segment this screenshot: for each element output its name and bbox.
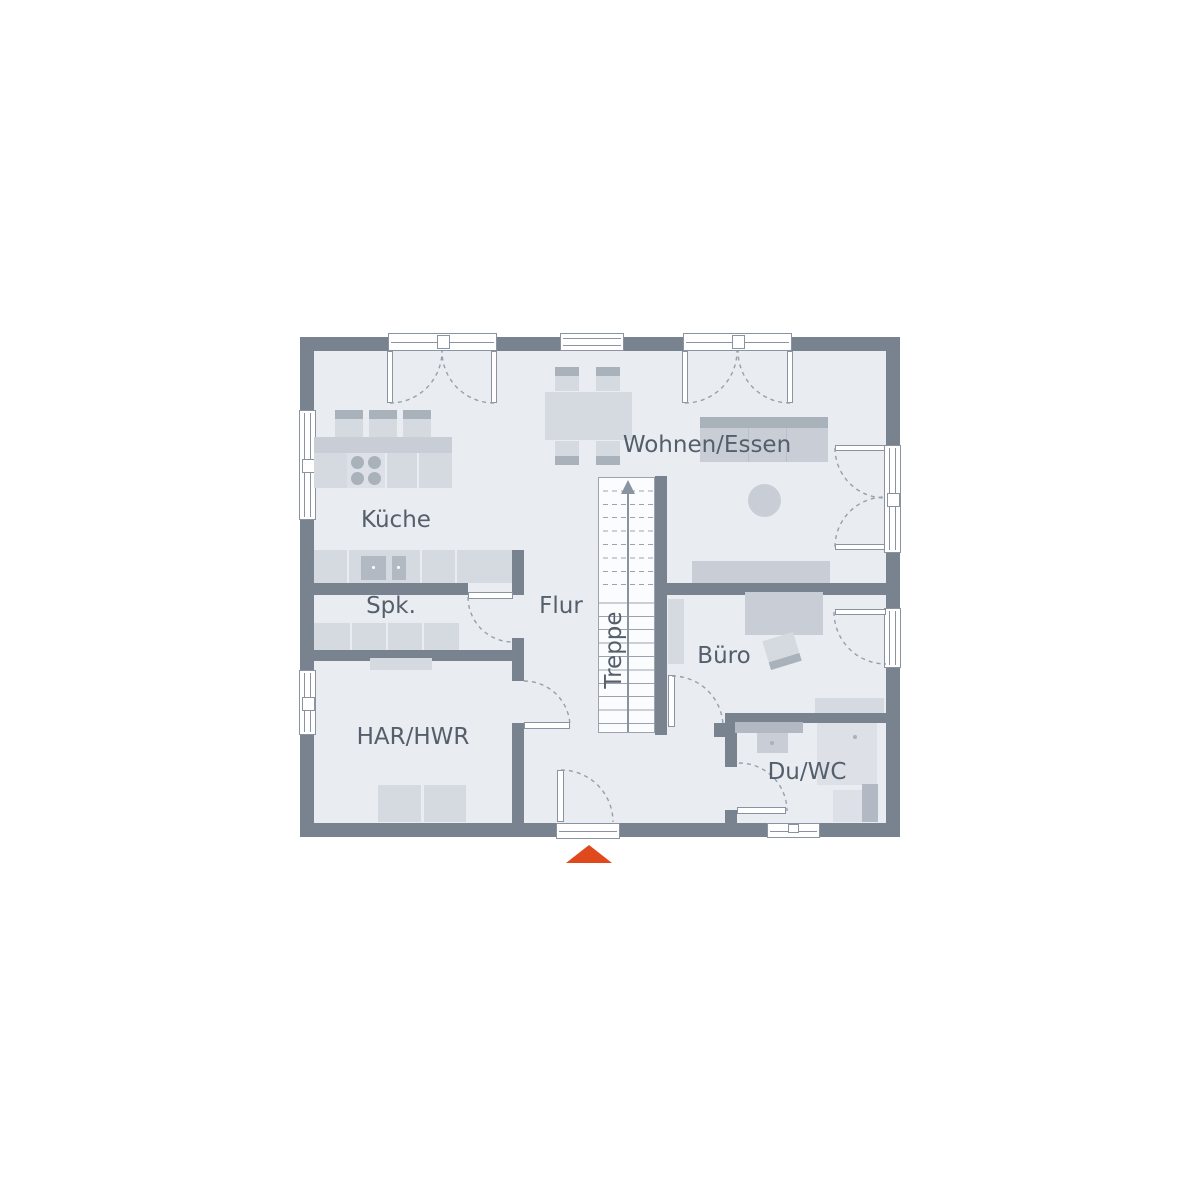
stool xyxy=(335,419,363,437)
chair xyxy=(555,376,579,391)
chair xyxy=(555,441,579,456)
exterior-wall-right xyxy=(886,337,900,837)
french-door-right xyxy=(884,445,901,553)
room-label-har-hwr: HAR/HWR xyxy=(323,722,503,752)
washbasin xyxy=(757,733,788,753)
arrow-up-icon xyxy=(621,480,635,494)
terrace-door-buero xyxy=(884,608,901,668)
room-label-wohnen-essen: Wohnen/Essen xyxy=(607,430,807,460)
door-leaf xyxy=(835,544,885,550)
counter-divider xyxy=(420,550,422,583)
shelf-divider xyxy=(422,623,424,650)
door-handle xyxy=(732,335,745,349)
room-label-buero: Büro xyxy=(654,641,794,671)
kitchen-counter-back xyxy=(314,437,452,453)
counter-divider xyxy=(417,453,419,488)
counter-divider xyxy=(385,453,387,488)
toilet xyxy=(833,790,862,822)
office-cabinet xyxy=(815,698,884,713)
wall-duwc-stub xyxy=(714,723,727,737)
chair xyxy=(596,376,620,391)
wall-stairs xyxy=(655,476,667,735)
door-leaf xyxy=(491,351,497,403)
burner xyxy=(351,456,364,469)
stove xyxy=(347,453,385,488)
kitchen-sink-counter xyxy=(314,550,512,583)
shelf-divider xyxy=(350,623,352,650)
vanity-counter xyxy=(735,722,803,733)
door-leaf-duwc xyxy=(737,807,786,814)
burner xyxy=(368,456,381,469)
stool-back xyxy=(335,410,363,419)
room-label-treppe: Treppe xyxy=(599,600,629,700)
shelf-divider xyxy=(386,623,388,650)
chair-back xyxy=(555,456,579,465)
pantry-shelves xyxy=(314,623,459,650)
entrance-triangle-icon xyxy=(566,845,612,863)
washing-machine xyxy=(378,785,421,822)
french-door-top-right xyxy=(683,333,792,351)
burner xyxy=(368,472,381,485)
floorplan-canvas: Küche Spk. HAR/HWR Flur Treppe Wohnen/Es… xyxy=(0,0,1200,1200)
counter-divider xyxy=(347,550,349,583)
room-label-spk: Spk. xyxy=(321,591,461,621)
room-label-du-wc: Du/WC xyxy=(737,757,877,787)
door-leaf-entrance xyxy=(557,770,564,822)
sink xyxy=(392,556,406,580)
sofa-back xyxy=(700,417,828,428)
sink-dot xyxy=(372,566,375,569)
window-duwc xyxy=(767,823,820,838)
stool-back xyxy=(403,410,431,419)
counter-divider xyxy=(455,550,457,583)
wall-har-flur xyxy=(512,723,524,823)
drain-dot xyxy=(853,735,857,739)
sill-line xyxy=(559,831,617,832)
stool-back xyxy=(369,410,397,419)
wall-kueche-flur xyxy=(512,550,524,595)
french-door-top-left xyxy=(388,333,497,351)
door-handle xyxy=(437,335,450,349)
door-leaf xyxy=(387,351,393,403)
round-table xyxy=(748,484,781,517)
door-handle xyxy=(887,493,900,507)
door-leaf xyxy=(787,351,793,403)
door-leaf xyxy=(835,445,885,451)
dryer xyxy=(424,785,466,822)
glazing-line xyxy=(889,611,896,665)
toilet-cistern xyxy=(862,784,878,822)
entrance-door-sill xyxy=(556,823,620,839)
door-leaf xyxy=(682,351,688,403)
door-leaf-har xyxy=(524,722,570,729)
wall-duwc-bottom-stub xyxy=(725,810,737,823)
door-leaf-buero xyxy=(668,675,675,727)
chair-back xyxy=(596,367,620,376)
desk xyxy=(745,592,823,635)
burner xyxy=(351,472,364,485)
door-leaf xyxy=(835,609,886,615)
window-handle xyxy=(302,697,315,711)
har-shelf xyxy=(370,658,432,670)
basin-dot xyxy=(770,741,774,745)
glazing-lines xyxy=(563,338,621,346)
chair-back xyxy=(555,367,579,376)
sink xyxy=(361,556,386,580)
sideboard xyxy=(692,561,830,583)
window-handle xyxy=(788,824,799,833)
stool xyxy=(369,419,397,437)
room-label-kueche: Küche xyxy=(326,505,466,535)
stool xyxy=(403,419,431,437)
sink-dot xyxy=(397,566,400,569)
window-har xyxy=(299,670,316,735)
window-top-center xyxy=(560,333,624,351)
